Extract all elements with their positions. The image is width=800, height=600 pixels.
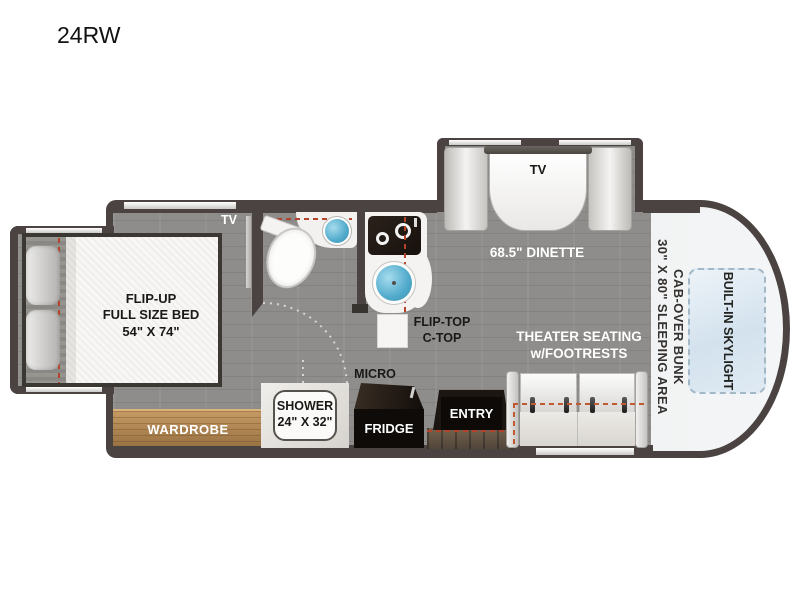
door-swing-arc [0, 0, 800, 600]
floorplan-page: 24RW FLIP-UP FULL SIZE BED 54" X 74" [0, 0, 800, 600]
floorplan: FLIP-UP FULL SIZE BED 54" X 74" WARDROBE… [0, 0, 800, 600]
